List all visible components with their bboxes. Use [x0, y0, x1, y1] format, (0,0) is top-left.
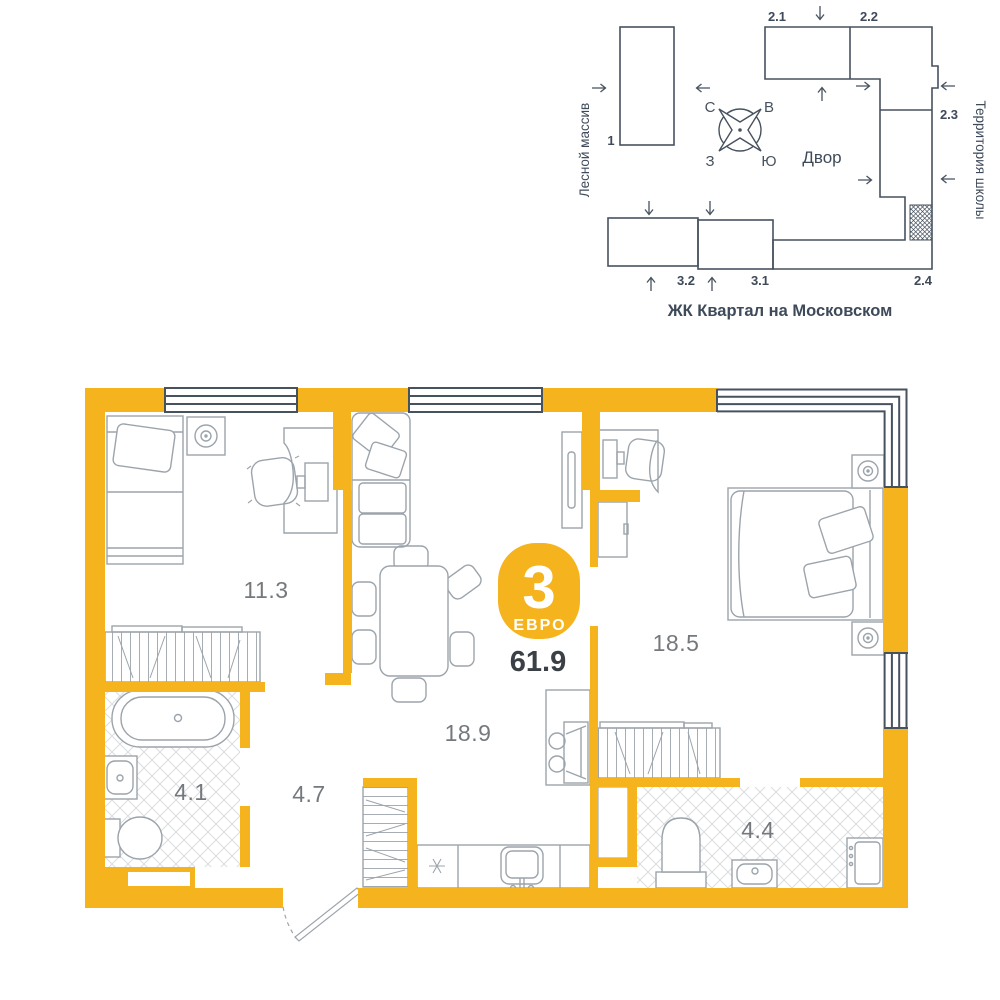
compass-east-label: В	[764, 99, 774, 116]
window-bedroom-1	[165, 388, 297, 412]
washing-machine-icon	[847, 838, 883, 888]
site-plan: С В З Ю 1 2.1 2.2 2.3 2.4 3.1 3.2 Двор Л…	[577, 6, 988, 320]
total-area-label: 61.9	[510, 646, 566, 678]
double-bed-icon	[728, 488, 883, 620]
apartment-plan: 11.3 18.9 18.5 4.1 4.7 4.4 3 ЕВРО 61.9	[85, 388, 908, 941]
utility-closet	[598, 787, 628, 858]
dining-table-icon	[352, 546, 484, 702]
site-building-22-label: 2.2	[860, 9, 878, 24]
site-building-21-label: 2.1	[768, 9, 786, 24]
compass-west-label: З	[705, 153, 714, 170]
nightstand-lamp-icon-top	[852, 455, 884, 488]
floorplan-page: С В З Ю 1 2.1 2.2 2.3 2.4 3.1 3.2 Двор Л…	[0, 0, 1000, 1000]
compass-south-label: Ю	[761, 153, 776, 170]
site-building-24-label: 2.4	[914, 273, 933, 288]
desk-icon-bedroom-2	[600, 430, 658, 492]
room-area-bathroom-1: 4.1	[174, 779, 207, 805]
apartment-type-badge: 3 ЕВРО	[498, 543, 580, 639]
wardrobe-icon-hallway	[363, 787, 408, 887]
desk-icon	[284, 428, 337, 533]
dresser-icon-bedroom-1	[105, 626, 260, 682]
compass-rose-icon	[719, 109, 761, 151]
room-area-bedroom-2: 18.5	[653, 630, 700, 656]
toilet-icon-bathroom-2	[656, 818, 706, 888]
compass-north-label: С	[705, 99, 716, 116]
nightstand-lamp-icon	[187, 417, 225, 455]
badge-layout-type: ЕВРО	[513, 617, 566, 634]
site-right-label: Территория школы	[973, 101, 988, 220]
site-building-31-label: 3.1	[751, 273, 769, 288]
nightstand-lamp-icon-bottom	[852, 622, 884, 655]
cabinet-icon-bedroom-2	[598, 502, 628, 557]
fridge-hob-icon	[546, 690, 590, 785]
site-plan-title: ЖК Квартал на Московском	[667, 302, 893, 320]
dresser-icon-bedroom-2	[598, 722, 720, 778]
duct-niche	[128, 872, 190, 886]
window-living	[409, 388, 542, 412]
site-section-marker	[910, 205, 932, 240]
room-area-bathroom-2: 4.4	[741, 817, 774, 843]
tv-console-icon	[562, 432, 582, 528]
site-building-1-label: 1	[607, 133, 614, 148]
single-bed-icon	[107, 416, 183, 564]
toilet-icon-bathroom-1	[104, 817, 162, 859]
entrance-door-icon	[282, 888, 361, 941]
site-building-23-label: 2.3	[940, 107, 958, 122]
room-area-bedroom-1: 11.3	[243, 577, 288, 603]
window-bedroom-2-side	[884, 653, 908, 728]
site-building-1-outline	[620, 27, 674, 145]
room-area-hallway: 4.7	[292, 781, 325, 807]
bathtub-icon	[112, 690, 234, 747]
desk-chair-icon-bedroom-2	[624, 438, 665, 483]
kitchen-counter-icon	[417, 845, 590, 891]
badge-rooms-count: 3	[522, 554, 555, 621]
site-building-32-label: 3.2	[677, 273, 695, 288]
site-left-label: Лесной массив	[577, 103, 592, 197]
site-yard-label: Двор	[802, 148, 841, 167]
floorplan-canvas: С В З Ю 1 2.1 2.2 2.3 2.4 3.1 3.2 Двор Л…	[0, 0, 1000, 1000]
room-area-kitchen-living: 18.9	[445, 720, 492, 746]
sofa-icon	[351, 412, 410, 547]
site-complex-outline	[608, 27, 938, 269]
